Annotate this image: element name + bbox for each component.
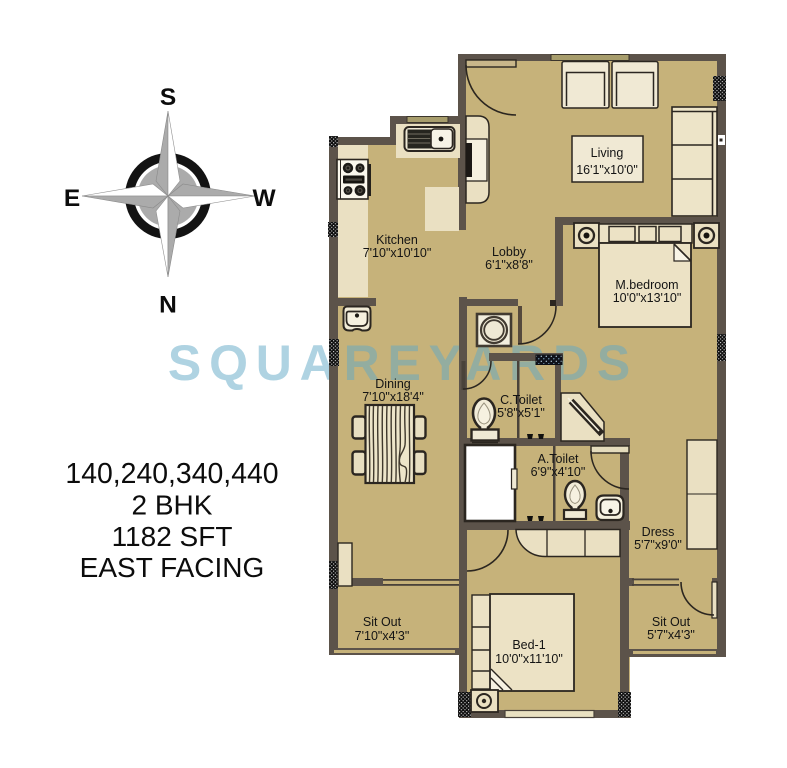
- svg-text:5'7"x9'0": 5'7"x9'0": [634, 538, 682, 552]
- svg-text:7'10"x10'10": 7'10"x10'10": [363, 246, 432, 260]
- svg-text:7'10"x18'4": 7'10"x18'4": [362, 390, 424, 404]
- svg-text:6'9"x4'10": 6'9"x4'10": [531, 465, 586, 479]
- svg-text:C.Toilet: C.Toilet: [500, 393, 542, 407]
- svg-text:Living: Living: [591, 146, 624, 160]
- svg-text:5'8"x5'1": 5'8"x5'1": [497, 406, 545, 420]
- svg-text:S: S: [160, 84, 176, 111]
- svg-text:16'1"x10'0": 16'1"x10'0": [576, 163, 638, 177]
- svg-text:E: E: [64, 185, 80, 212]
- svg-text:6'1"x8'8": 6'1"x8'8": [485, 258, 533, 272]
- svg-text:M.bedroom: M.bedroom: [615, 278, 678, 292]
- svg-text:10'0"x13'10": 10'0"x13'10": [613, 291, 682, 305]
- svg-text:2 BHK: 2 BHK: [132, 490, 213, 521]
- svg-text:140,240,340,440: 140,240,340,440: [65, 458, 278, 490]
- svg-text:Bed-1: Bed-1: [512, 638, 545, 652]
- svg-text:5'7"x4'3": 5'7"x4'3": [647, 628, 695, 642]
- svg-text:7'10"x4'3": 7'10"x4'3": [355, 629, 410, 643]
- svg-text:W: W: [252, 185, 276, 212]
- svg-text:A.Toilet: A.Toilet: [538, 452, 580, 466]
- svg-text:Sit Out: Sit Out: [652, 615, 691, 629]
- svg-text:EAST FACING: EAST FACING: [80, 552, 265, 583]
- svg-text:N: N: [159, 292, 177, 319]
- svg-text:Dress: Dress: [642, 525, 675, 539]
- svg-text:1182 SFT: 1182 SFT: [112, 521, 233, 552]
- svg-text:Dining: Dining: [375, 377, 410, 391]
- svg-text:Sit Out: Sit Out: [363, 615, 402, 629]
- svg-text:Lobby: Lobby: [492, 245, 527, 259]
- svg-text:10'0"x11'10": 10'0"x11'10": [495, 652, 563, 666]
- svg-text:Kitchen: Kitchen: [376, 233, 418, 247]
